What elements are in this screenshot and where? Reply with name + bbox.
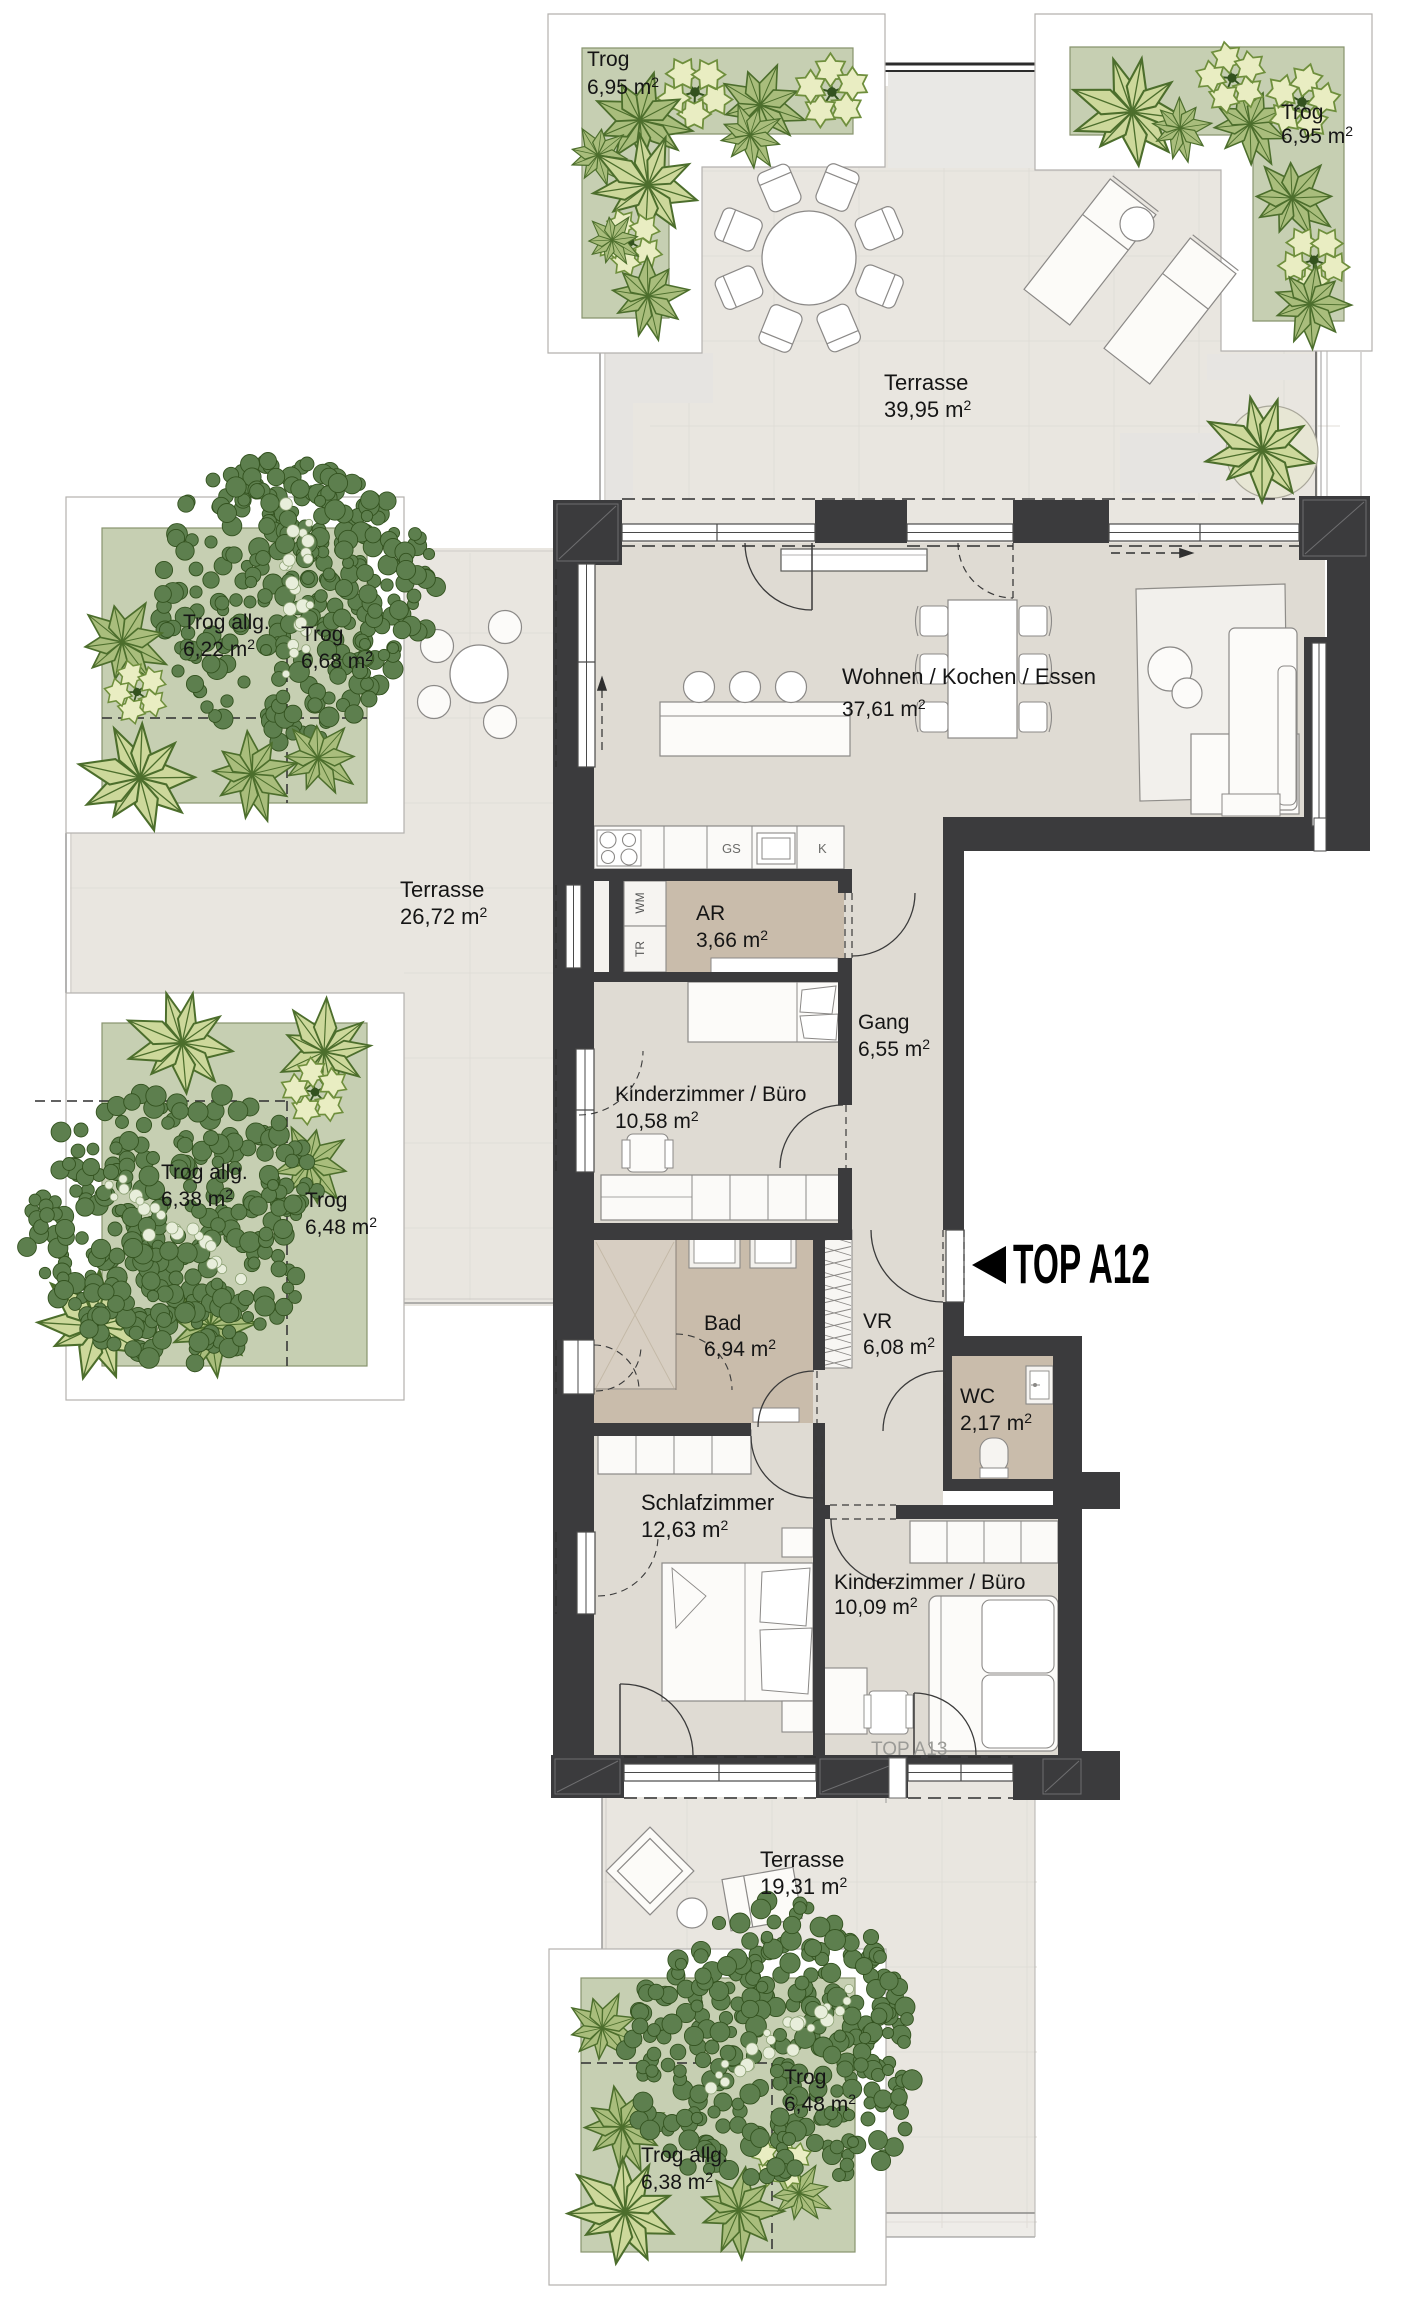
svg-text:AR: AR bbox=[696, 902, 725, 925]
svg-text:6,48 m2: 6,48 m2 bbox=[305, 1214, 377, 1239]
svg-text:10,58 m2: 10,58 m2 bbox=[615, 1108, 699, 1133]
svg-text:Terrasse: Terrasse bbox=[760, 1847, 844, 1872]
svg-text:Trog allg.: Trog allg. bbox=[161, 1161, 248, 1184]
svg-text:Gang: Gang bbox=[858, 1011, 909, 1034]
svg-text:VR: VR bbox=[863, 1310, 892, 1333]
svg-text:WC: WC bbox=[960, 1385, 995, 1408]
svg-text:10,09 m2: 10,09 m2 bbox=[834, 1594, 918, 1619]
svg-text:TOP A13: TOP A13 bbox=[871, 1739, 947, 1760]
svg-text:Kinderzimmer / Büro: Kinderzimmer / Büro bbox=[834, 1571, 1025, 1594]
svg-text:GS: GS bbox=[722, 841, 741, 856]
svg-text:6,68 m2: 6,68 m2 bbox=[301, 648, 373, 673]
svg-text:6,08 m2: 6,08 m2 bbox=[863, 1334, 935, 1359]
svg-text:6,55 m2: 6,55 m2 bbox=[858, 1036, 930, 1061]
svg-text:19,31 m2: 19,31 m2 bbox=[760, 1874, 848, 1899]
svg-text:Terrasse: Terrasse bbox=[884, 370, 968, 395]
svg-text:6,22 m2: 6,22 m2 bbox=[183, 636, 255, 661]
svg-text:6,95 m2: 6,95 m2 bbox=[1281, 123, 1353, 148]
svg-text:6,94 m2: 6,94 m2 bbox=[704, 1336, 776, 1361]
svg-text:Wohnen / Kochen / Essen: Wohnen / Kochen / Essen bbox=[842, 664, 1096, 689]
svg-text:TR: TR bbox=[633, 941, 647, 957]
svg-text:WM: WM bbox=[633, 892, 647, 913]
svg-text:Kinderzimmer / Büro: Kinderzimmer / Büro bbox=[615, 1083, 806, 1106]
svg-text:Trog: Trog bbox=[587, 48, 629, 71]
svg-text:37,61 m2: 37,61 m2 bbox=[842, 696, 926, 721]
svg-text:Trog allg.: Trog allg. bbox=[641, 2144, 728, 2167]
svg-text:6,95 m2: 6,95 m2 bbox=[587, 74, 659, 99]
svg-text:3,66 m2: 3,66 m2 bbox=[696, 927, 768, 952]
svg-text:12,63 m2: 12,63 m2 bbox=[641, 1517, 729, 1542]
svg-text:TOP A12: TOP A12 bbox=[1013, 1232, 1150, 1295]
svg-text:Trog allg.: Trog allg. bbox=[183, 611, 270, 634]
svg-text:Trog: Trog bbox=[305, 1189, 347, 1212]
svg-text:Trog: Trog bbox=[784, 2066, 826, 2089]
svg-text:6,48 m2: 6,48 m2 bbox=[784, 2091, 856, 2116]
svg-text:39,95 m2: 39,95 m2 bbox=[884, 397, 972, 422]
svg-text:6,38 m2: 6,38 m2 bbox=[641, 2169, 713, 2194]
svg-text:2,17 m2: 2,17 m2 bbox=[960, 1410, 1032, 1435]
svg-text:Terrasse: Terrasse bbox=[400, 877, 484, 902]
svg-text:Schlafzimmer: Schlafzimmer bbox=[641, 1490, 774, 1515]
svg-text:Trog: Trog bbox=[301, 623, 343, 646]
svg-text:6,38 m2: 6,38 m2 bbox=[161, 1186, 233, 1211]
svg-text:26,72 m2: 26,72 m2 bbox=[400, 904, 488, 929]
svg-text:Bad: Bad bbox=[704, 1312, 741, 1335]
svg-text:K: K bbox=[818, 841, 827, 856]
svg-text:Trog: Trog bbox=[1281, 101, 1323, 124]
